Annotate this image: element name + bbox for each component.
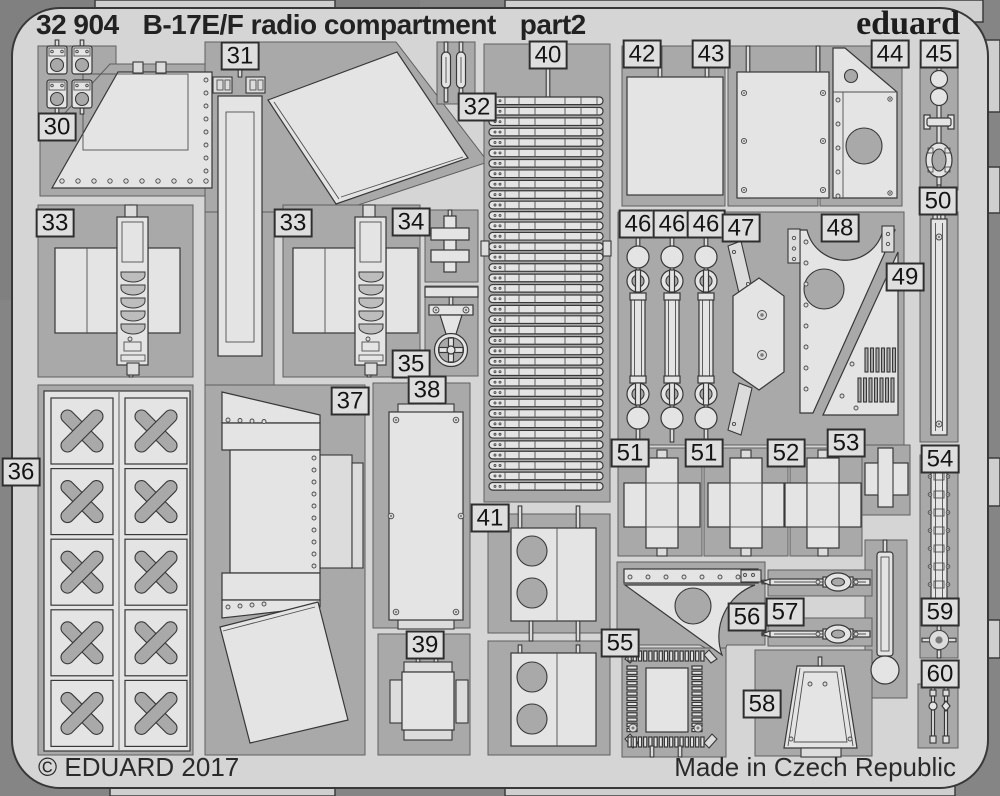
part-label-30: 30 [38,113,77,142]
part-58-trapezoid-bracket [784,666,857,757]
fret-scan: 32 904 B-17E/F radio compartment part2 e… [0,0,1000,796]
part-38-panel [389,404,463,629]
part-label-40: 40 [529,41,568,70]
copyright-text: © EDUARD 2017 [38,752,239,783]
part-label-32: 32 [458,93,497,122]
part-label-49: 49 [886,263,925,292]
part-label-58: 58 [743,690,782,719]
fret-sheet-graphic [0,0,1000,796]
part-50-strip [931,213,947,435]
part-36-x-grid-panel [44,391,190,751]
part-label-41: 41 [471,504,510,533]
part-label-47: 47 [722,214,761,243]
part-label-38: 38 [408,376,447,405]
part-label-48: 48 [821,214,860,243]
sheet-title: B-17E/F radio compartment [143,9,496,41]
part-label-57: 57 [766,598,805,627]
sheet-footer: © EDUARD 2017 Made in Czech Republic [38,752,956,783]
part-label-44: 44 [871,40,910,69]
part-label-51a: 51 [611,439,650,468]
part-label-39: 39 [406,631,445,660]
catalog-number: 32 904 [36,9,119,41]
part-label-52: 52 [767,439,806,468]
part-label-34: 34 [392,208,431,237]
part-label-46b: 46 [653,210,692,239]
part-label-31: 31 [221,42,260,71]
sheet-part-suffix: part2 [520,9,586,41]
part-label-33b: 33 [274,209,313,238]
part-label-37: 37 [331,387,370,416]
part-label-46a: 46 [619,210,658,239]
part-label-35: 35 [392,350,431,379]
part-label-51b: 51 [685,439,724,468]
part-label-54: 54 [921,445,960,474]
part-label-33a: 33 [36,209,75,238]
part-label-59: 59 [921,598,960,627]
brand-logo: eduard [856,9,960,39]
part-label-60: 60 [921,660,960,689]
part-43-panel [737,72,829,198]
part-label-46c: 46 [687,210,726,239]
sheet-header: 32 904 B-17E/F radio compartment part2 e… [36,9,960,41]
part-label-53: 53 [827,429,866,458]
part-label-36: 36 [2,458,41,487]
made-in-text: Made in Czech Republic [674,752,956,783]
part-label-56: 56 [728,603,767,632]
part-label-43: 43 [692,40,731,69]
part-label-45: 45 [920,40,959,69]
part-label-50: 50 [919,187,958,216]
part-label-42: 42 [623,40,662,69]
part-42-panel [627,77,723,195]
part-31-tall-panel [213,77,265,356]
part-label-55: 55 [601,629,640,658]
